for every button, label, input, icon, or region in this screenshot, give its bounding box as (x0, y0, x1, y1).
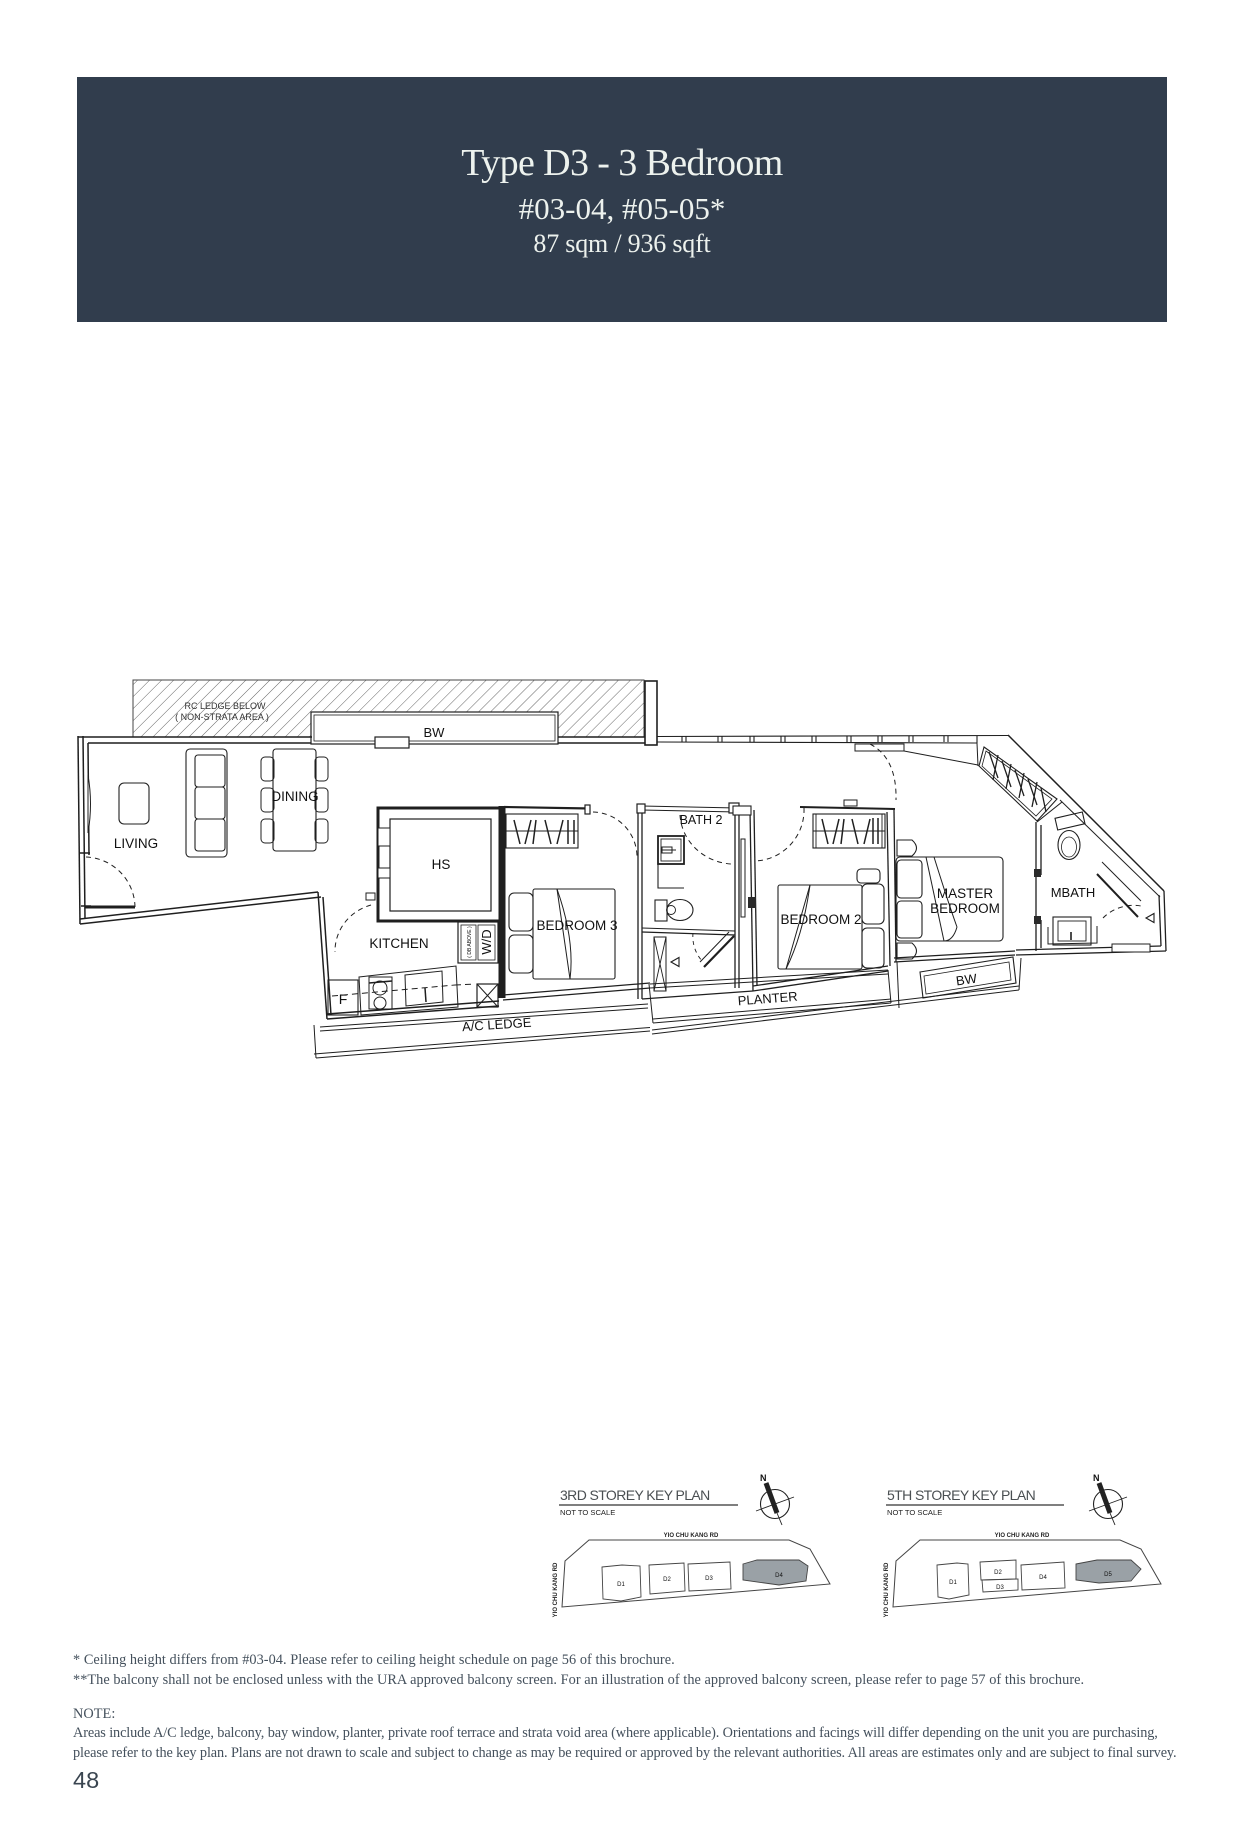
svg-text:N: N (1093, 1473, 1100, 1483)
svg-text:( DB ABOVE ): ( DB ABOVE ) (467, 926, 473, 958)
svg-text:DINING: DINING (271, 789, 318, 804)
svg-text:YIO CHU KANG RD: YIO CHU KANG RD (664, 1533, 719, 1539)
svg-text:BEDROOM 3: BEDROOM 3 (536, 918, 617, 933)
svg-text:D3: D3 (996, 1585, 1004, 1591)
svg-text:D2: D2 (994, 1570, 1002, 1576)
svg-text:LIVING: LIVING (114, 836, 158, 851)
svg-text:W/D: W/D (479, 929, 494, 954)
svg-text:D2: D2 (663, 1577, 671, 1583)
svg-text:BW: BW (424, 725, 446, 740)
svg-text:D5: D5 (1104, 1572, 1112, 1578)
svg-text:5TH STOREY KEY PLAN: 5TH STOREY KEY PLAN (887, 1487, 1035, 1503)
svg-text:D3: D3 (705, 1576, 713, 1582)
svg-text:N: N (760, 1473, 767, 1483)
svg-text:BEDROOM 2: BEDROOM 2 (780, 912, 861, 927)
svg-text:D4: D4 (775, 1573, 783, 1579)
svg-text:3RD STOREY KEY PLAN: 3RD STOREY KEY PLAN (560, 1487, 710, 1503)
svg-text:D1: D1 (949, 1580, 957, 1586)
svg-text:KITCHEN: KITCHEN (369, 936, 428, 951)
svg-text:YIO CHU KANG RD: YIO CHU KANG RD (553, 1562, 559, 1617)
svg-text:NOT TO SCALE: NOT TO SCALE (887, 1508, 942, 1517)
svg-text:A/C LEDGE: A/C LEDGE (462, 1015, 533, 1035)
svg-text:MASTER: MASTER (937, 886, 994, 901)
svg-text:D1: D1 (617, 1582, 625, 1588)
svg-text:NOT TO SCALE: NOT TO SCALE (560, 1508, 615, 1517)
svg-text:BATH 2: BATH 2 (680, 813, 723, 827)
svg-text:RC LEDGE BELOW: RC LEDGE BELOW (184, 701, 266, 711)
svg-text:YIO CHU KANG RD: YIO CHU KANG RD (884, 1562, 890, 1617)
svg-text:F: F (339, 991, 348, 1007)
svg-text:MBATH: MBATH (1051, 885, 1096, 900)
svg-text:YIO CHU KANG RD: YIO CHU KANG RD (995, 1533, 1050, 1539)
svg-text:D4: D4 (1039, 1575, 1047, 1581)
svg-text:( NON-STRATA AREA ): ( NON-STRATA AREA ) (175, 712, 269, 722)
svg-text:HS: HS (432, 857, 451, 872)
svg-text:BW: BW (955, 971, 979, 989)
svg-text:BEDROOM: BEDROOM (930, 901, 1000, 916)
